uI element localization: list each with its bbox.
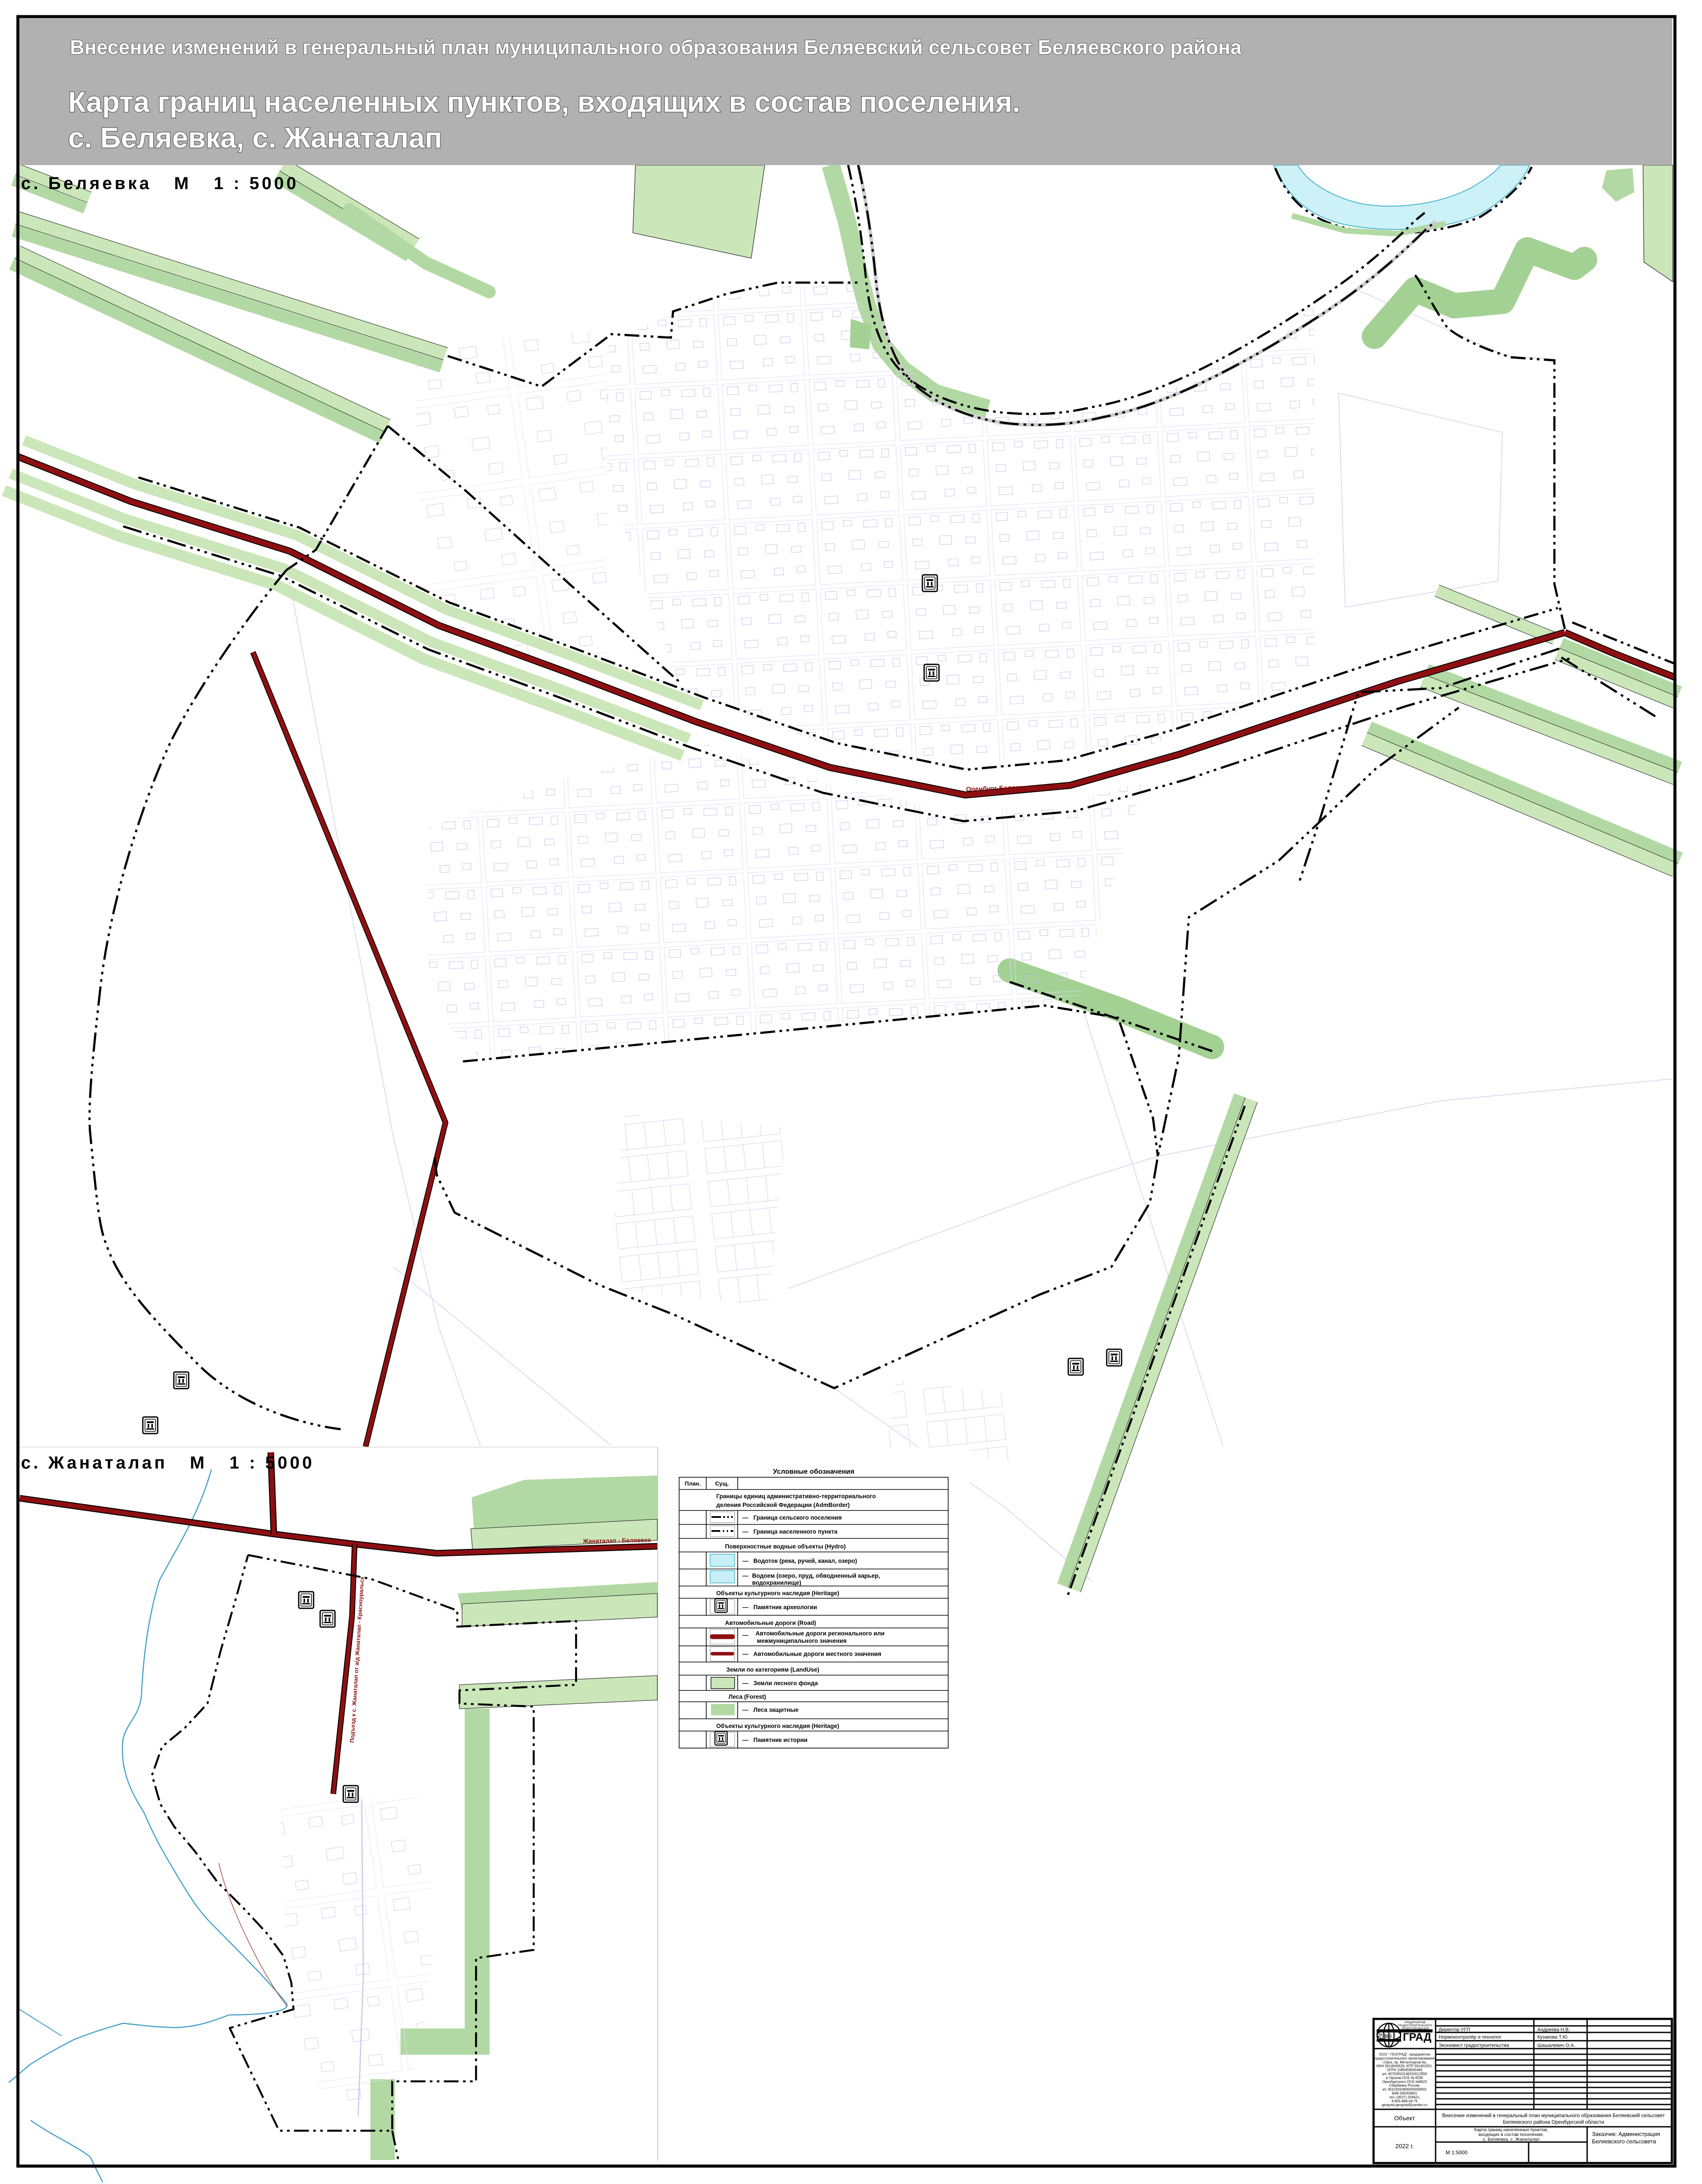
- svg-text:ПРЕДПРИЯТИЕ: ПРЕДПРИЯТИЕ: [1404, 2021, 1426, 2024]
- svg-text:ОГРН 1085658005465: ОГРН 1085658005465: [1387, 2068, 1422, 2072]
- svg-text:Автомобильные дороги региональ: Автомобильные дороги регионального или: [756, 1630, 884, 1637]
- svg-text:geograd-geograd@yandex.ru: geograd-geograd@yandex.ru: [1382, 2103, 1428, 2107]
- svg-text:—: —: [742, 1604, 749, 1610]
- svg-text:Заказчик: Администрация: Заказчик: Администрация: [1592, 2131, 1660, 2137]
- svg-text:Памятник истории: Памятник истории: [753, 1737, 808, 1743]
- svg-text:Директор УГП: Директор УГП: [1439, 2027, 1470, 2032]
- svg-text:гео: гео: [1378, 2032, 1391, 2041]
- svg-text:межмуниципального значения: межмуниципального значения: [757, 1638, 846, 1644]
- svg-text:—: —: [742, 1707, 749, 1713]
- svg-text:—: —: [742, 1528, 749, 1535]
- svg-text:Границы единиц административно: Границы единиц административно-территори…: [716, 1493, 876, 1500]
- svg-text:с. Беляевка, с. Жанаталап: с. Беляевка, с. Жанаталап: [68, 121, 442, 154]
- svg-text:—: —: [742, 1514, 749, 1521]
- svg-text:Карта границ населенных пункто: Карта границ населенных пунктов, входящи…: [68, 86, 1020, 118]
- svg-text:Жанаталап - Беляевка: Жанаталап - Беляевка: [583, 1536, 651, 1545]
- svg-text:Кузакова Т.Ю.: Кузакова Т.Ю.: [1537, 2035, 1569, 2040]
- svg-text:План.: План.: [685, 1480, 701, 1487]
- svg-text:Граница населенного пункта: Граница населенного пункта: [753, 1528, 838, 1535]
- svg-text:р/с 40702810146310012959: р/с 40702810146310012959: [1382, 2072, 1427, 2076]
- svg-text:ГРАД: ГРАД: [1403, 2031, 1432, 2043]
- svg-text:Земли по категориям (LandUse): Земли по категориям (LandUse): [726, 1666, 819, 1673]
- svg-text:8-905-899-04-75: 8-905-899-04-75: [1391, 2099, 1418, 2103]
- svg-text:Беляевского сельсовета: Беляевского сельсовета: [1592, 2138, 1657, 2145]
- svg-text:Объекты культурного наследия (: Объекты культурного наследия (Heritage): [716, 1723, 839, 1729]
- svg-text:ГРАДОСТРОИТЕЛЬНОГО: ГРАДОСТРОИТЕЛЬНОГО: [1398, 2024, 1433, 2027]
- svg-text:тел.:(3537) 254621,: тел.:(3537) 254621,: [1389, 2095, 1420, 2099]
- svg-text:градостроительного проектирова: градостроительного проектирования: [1375, 2056, 1435, 2060]
- svg-text:Условные обозначения: Условные обозначения: [773, 1468, 854, 1476]
- svg-text:Нормоконтролёр и технолог: Нормоконтролёр и технолог: [1439, 2035, 1502, 2040]
- svg-text:Объект: Объект: [1394, 2115, 1415, 2122]
- svg-text:Сбербанка России,: Сбербанка России,: [1389, 2084, 1420, 2087]
- svg-text:—: —: [742, 1558, 749, 1564]
- svg-text:ООО " ГЕОГРАД", предприятие: ООО " ГЕОГРАД", предприятие: [1379, 2053, 1430, 2056]
- svg-text:БИК 045354601: БИК 045354601: [1392, 2091, 1417, 2095]
- svg-text:Водоем (озеро, пруд, обводненн: Водоем (озеро, пруд, обводненный карьер,: [752, 1572, 880, 1579]
- svg-text:—: —: [742, 1737, 749, 1743]
- svg-text:Экономист градостроительства: Экономист градостроительства: [1439, 2043, 1509, 2048]
- svg-text:—: —: [742, 1572, 749, 1579]
- svg-text:Внесение изменений в генеральн: Внесение изменений в генеральный план му…: [70, 36, 1242, 59]
- svg-text:Автомобильные дороги местного: Автомобильные дороги местного значения: [753, 1651, 881, 1657]
- svg-text:Памятник археологии: Памятник археологии: [753, 1604, 817, 1610]
- svg-text:водохранилище): водохранилище): [752, 1579, 801, 1586]
- svg-text:Автомобильные дороги (Road): Автомобильные дороги (Road): [725, 1620, 816, 1626]
- svg-text:Сущ.: Сущ.: [715, 1480, 728, 1487]
- svg-text:—: —: [742, 1680, 749, 1686]
- svg-text:Земли лесного фонда: Земли лесного фонда: [753, 1680, 818, 1686]
- svg-text:2022 г.: 2022 г.: [1395, 2143, 1414, 2149]
- svg-text:Андреева Н.В.: Андреева Н.В.: [1537, 2027, 1570, 2032]
- svg-text:Леса (Forest): Леса (Forest): [728, 1693, 766, 1700]
- svg-text:М 1:5000: М 1:5000: [1446, 2149, 1467, 2156]
- svg-text:с. Беляевка М 1 : 5000: с. Беляевка М 1 : 5000: [21, 174, 299, 193]
- svg-text:—: —: [742, 1651, 749, 1657]
- svg-text:деления Российской Федерации (: деления Российской Федерации (AdmBorder): [716, 1502, 850, 1508]
- svg-text:Поверхностные водные объекты (: Поверхностные водные объекты (Hydro): [725, 1543, 846, 1550]
- svg-text:ПРОЕКТИРОВАНИЯ: ПРОЕКТИРОВАНИЯ: [1402, 2027, 1429, 2030]
- svg-text:в Орском ОСБ № 8290: в Орском ОСБ № 8290: [1386, 2076, 1424, 2080]
- svg-text:Беляевского района Оренбургско: Беляевского района Оренбургской области: [1503, 2120, 1604, 2125]
- svg-text:г.Орск, пр. Металлургов 6а,: г.Орск, пр. Металлургов 6а,: [1382, 2060, 1426, 2064]
- svg-text:Водоток (река, ручей, канал, о: Водоток (река, ручей, канал, озеро): [753, 1558, 857, 1564]
- svg-text:к/с 30101810600000000601: к/с 30101810600000000601: [1383, 2087, 1427, 2091]
- svg-text:Шашалевич О.А.: Шашалевич О.А.: [1537, 2043, 1575, 2048]
- svg-text:Объекты культурного наследия (: Объекты культурного наследия (Heritage): [716, 1590, 839, 1597]
- svg-text:Леса защитные: Леса защитные: [753, 1707, 799, 1713]
- svg-text:с. Беляевка, с. Жанаталап: с. Беляевка, с. Жанаталап: [1483, 2137, 1540, 2142]
- svg-text:с. Жанаталап М 1 : 5000: с. Жанаталап М 1 : 5000: [21, 1453, 314, 1472]
- svg-text:Граница сельского поселения: Граница сельского поселения: [753, 1514, 842, 1521]
- svg-text:Оренбургского ОСБ №8623: Оренбургского ОСБ №8623: [1382, 2080, 1427, 2084]
- svg-text:—: —: [742, 1632, 749, 1638]
- svg-text:ИНН 5614042629, КПП 561401001,: ИНН 5614042629, КПП 561401001,: [1376, 2064, 1433, 2068]
- svg-text:Внесение изменений в генеральн: Внесение изменений в генеральный план му…: [1442, 2113, 1665, 2118]
